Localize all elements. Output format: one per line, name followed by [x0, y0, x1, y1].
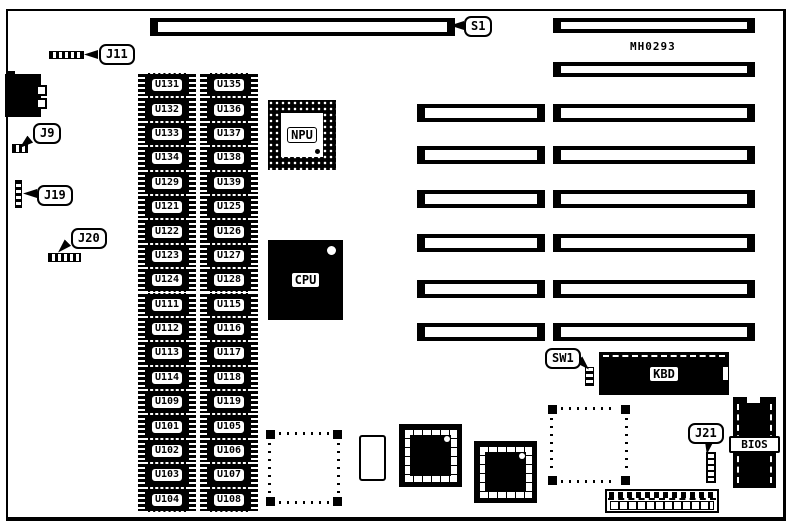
dip-pins — [200, 415, 207, 437]
dip-chip: U116 — [200, 317, 258, 341]
keyboard-port-tab — [36, 85, 47, 96]
dip-pins — [189, 440, 196, 462]
dip-pins — [251, 489, 258, 511]
kbd-dashed-line — [603, 355, 725, 357]
dip-chip: U105 — [200, 414, 258, 438]
dip-pins — [189, 318, 196, 340]
dip-pins — [251, 74, 258, 96]
dip-chip: U118 — [200, 366, 258, 390]
dip-chip: U133 — [138, 122, 196, 146]
dip-pins — [138, 415, 145, 437]
expansion-slot-inner — [425, 108, 537, 118]
dip-pins — [251, 196, 258, 218]
j20-connector — [48, 253, 81, 262]
dip-chip-label: U104 — [151, 493, 183, 507]
dip-body: U129 — [145, 171, 189, 195]
dip-chip-label: U123 — [151, 249, 183, 263]
connector-divider — [608, 498, 716, 500]
dip-pins — [251, 147, 258, 169]
dip-pins — [189, 294, 196, 316]
dip-chip: U127 — [200, 244, 258, 268]
dip-body: U114 — [145, 366, 189, 390]
dip-pins — [189, 196, 196, 218]
expansion-slot — [417, 146, 545, 164]
dip-pins — [251, 318, 258, 340]
dip-pins — [138, 98, 145, 120]
dip-chip: U112 — [138, 317, 196, 341]
callout-s1: S1 — [464, 16, 492, 37]
dip-chip-label: U126 — [213, 225, 245, 239]
expansion-slot — [417, 280, 545, 298]
expansion-slot — [553, 323, 755, 341]
dip-chip-label: U114 — [151, 371, 183, 385]
dip-body: U139 — [207, 171, 251, 195]
dip-chip-label: U129 — [151, 176, 183, 190]
dip-pins — [200, 74, 207, 96]
dip-body: U109 — [145, 390, 189, 414]
dip-pins — [251, 342, 258, 364]
kbd-notch — [723, 367, 728, 380]
expansion-slot-inner — [561, 22, 747, 29]
dip-chip-label: U124 — [151, 273, 183, 287]
plcc-chip — [399, 424, 462, 487]
dip-pins — [251, 172, 258, 194]
dip-body: U122 — [145, 219, 189, 243]
dip-chip-label: U125 — [213, 200, 245, 214]
dip-body: U137 — [207, 122, 251, 146]
dip-pins — [138, 367, 145, 389]
oscillator-outline — [359, 435, 386, 481]
dip-chip: U109 — [138, 390, 196, 414]
dip-chip-label: U102 — [151, 444, 183, 458]
callout-j9: J9 — [33, 123, 61, 144]
dip-body: U106 — [207, 439, 251, 463]
expansion-slot-inner — [425, 284, 537, 294]
dip-pins — [138, 220, 145, 242]
expansion-slot — [417, 190, 545, 208]
dip-chip: U106 — [200, 439, 258, 463]
expansion-slot-inner — [561, 194, 747, 204]
dip-pins — [189, 464, 196, 486]
dip-pins — [189, 123, 196, 145]
plcc-chip — [474, 441, 537, 503]
expansion-slot — [553, 104, 755, 122]
callout-sw1: SW1 — [545, 348, 581, 369]
dip-pins — [138, 123, 145, 145]
dip-pins — [189, 147, 196, 169]
dip-pins — [138, 489, 145, 511]
dip-body: U135 — [207, 73, 251, 97]
dip-chip-label: U122 — [151, 225, 183, 239]
bottom-edge-connector — [605, 489, 719, 513]
j11-connector — [49, 51, 84, 59]
dip-chip-label: U101 — [151, 420, 183, 434]
pin1-dot-icon — [444, 436, 450, 442]
dip-pins — [138, 294, 145, 316]
dip-chip: U137 — [200, 122, 258, 146]
dip-chip: U125 — [200, 195, 258, 219]
dip-body: U105 — [207, 414, 251, 438]
pin1-dot-icon — [315, 149, 320, 154]
dip-chip-label: U115 — [213, 298, 245, 312]
s1-slot-inner — [158, 22, 447, 32]
expansion-slot — [553, 190, 755, 208]
dip-body: U115 — [207, 293, 251, 317]
bios-notch — [747, 397, 760, 403]
dip-chip: U113 — [138, 341, 196, 365]
expansion-slot-inner — [425, 238, 537, 248]
dip-pins — [251, 269, 258, 291]
npu-socket: NPU — [268, 100, 336, 170]
dip-pins — [200, 196, 207, 218]
dip-chip-label: U133 — [151, 127, 183, 141]
callout-j21: J21 — [688, 423, 724, 444]
dip-body: U112 — [145, 317, 189, 341]
expansion-slot — [553, 280, 755, 298]
dip-pins — [200, 220, 207, 242]
expansion-slot-inner — [561, 327, 747, 337]
dip-pins — [200, 464, 207, 486]
dip-pins — [189, 98, 196, 120]
expansion-slot — [417, 104, 545, 122]
dip-pins — [138, 196, 145, 218]
dip-pins — [200, 318, 207, 340]
dip-chip: U102 — [138, 439, 196, 463]
dip-body: U131 — [145, 73, 189, 97]
dip-pins — [200, 245, 207, 267]
cpu-label: CPU — [291, 272, 321, 288]
dip-chip-label: U105 — [213, 420, 245, 434]
dip-pins — [200, 294, 207, 316]
dip-chip-label: U139 — [213, 176, 245, 190]
dip-body: U113 — [145, 341, 189, 365]
dip-pins — [138, 172, 145, 194]
dip-body: U107 — [207, 463, 251, 487]
s1-slot — [150, 18, 455, 36]
qfp-footprint — [548, 405, 630, 485]
dip-pins — [251, 245, 258, 267]
dip-pins — [189, 220, 196, 242]
expansion-slot — [417, 323, 545, 341]
dip-chip: U126 — [200, 219, 258, 243]
dip-body: U124 — [145, 268, 189, 292]
dip-pins — [200, 391, 207, 413]
dip-chip: U104 — [138, 488, 196, 512]
j21-connector — [706, 452, 716, 483]
dip-pins — [200, 172, 207, 194]
dip-chip-label: U103 — [151, 468, 183, 482]
dip-chip: U108 — [200, 488, 258, 512]
dip-chip: U138 — [200, 146, 258, 170]
dip-body: U121 — [145, 195, 189, 219]
dip-chip-label: U135 — [213, 78, 245, 92]
dip-body: U132 — [145, 97, 189, 121]
dip-body: U138 — [207, 146, 251, 170]
sw1-dip-switch — [585, 367, 594, 386]
dip-chip-label: U119 — [213, 395, 245, 409]
pin1-dot-icon — [327, 246, 336, 255]
board-outline — [6, 9, 786, 521]
dip-pins — [189, 391, 196, 413]
dip-chip: U136 — [200, 97, 258, 121]
dip-pins — [251, 440, 258, 462]
dip-chip: U103 — [138, 463, 196, 487]
dip-body: U126 — [207, 219, 251, 243]
dip-pins — [200, 342, 207, 364]
dip-body: U103 — [145, 463, 189, 487]
dip-pins — [138, 245, 145, 267]
expansion-slot-inner — [425, 327, 537, 337]
expansion-slot-inner — [561, 150, 747, 160]
dip-pins — [251, 123, 258, 145]
dip-body: U134 — [145, 146, 189, 170]
dip-chip: U134 — [138, 146, 196, 170]
dip-pins — [251, 415, 258, 437]
dip-pins — [200, 147, 207, 169]
expansion-slot — [553, 146, 755, 164]
dip-body: U127 — [207, 244, 251, 268]
dip-chip-label: U134 — [151, 151, 183, 165]
dip-chip-label: U116 — [213, 322, 245, 336]
dip-chip-label: U112 — [151, 322, 183, 336]
dip-body: U101 — [145, 414, 189, 438]
dip-pins — [200, 440, 207, 462]
dip-pins — [189, 489, 196, 511]
dip-body: U123 — [145, 244, 189, 268]
dip-pins — [200, 269, 207, 291]
expansion-slot — [553, 18, 755, 33]
qfp-footprint — [266, 430, 342, 506]
dip-chip-label: U111 — [151, 298, 183, 312]
dip-body: U133 — [145, 122, 189, 146]
dip-pins — [251, 464, 258, 486]
dip-chip: U122 — [138, 219, 196, 243]
dip-pins — [138, 391, 145, 413]
dip-pins — [189, 245, 196, 267]
dip-pins — [251, 220, 258, 242]
dip-pins — [251, 367, 258, 389]
callout-j11: J11 — [99, 44, 135, 65]
dip-chip-label: U108 — [213, 493, 245, 507]
dip-chip: U139 — [200, 171, 258, 195]
callout-j19: J19 — [37, 185, 73, 206]
dip-chip: U101 — [138, 414, 196, 438]
pin1-dot-icon — [519, 453, 525, 459]
dip-chip: U135 — [200, 73, 258, 97]
bios-chip: BIOS — [733, 397, 776, 488]
dip-pins — [251, 391, 258, 413]
dip-pins — [189, 74, 196, 96]
expansion-slot-inner — [561, 66, 747, 73]
dip-pins — [138, 342, 145, 364]
dip-body: U102 — [145, 439, 189, 463]
dip-chip: U124 — [138, 268, 196, 292]
dip-chip: U119 — [200, 390, 258, 414]
dip-body: U128 — [207, 268, 251, 292]
dip-pins — [189, 269, 196, 291]
dip-chip: U107 — [200, 463, 258, 487]
dip-body: U116 — [207, 317, 251, 341]
dip-chip: U121 — [138, 195, 196, 219]
expansion-slot-inner — [561, 238, 747, 248]
cpu-chip: CPU — [268, 240, 343, 320]
dip-chip: U128 — [200, 268, 258, 292]
dip-chip-label: U137 — [213, 127, 245, 141]
dip-pins — [200, 367, 207, 389]
dip-chip-label: U106 — [213, 444, 245, 458]
dip-pins — [251, 98, 258, 120]
dip-chip-label: U109 — [151, 395, 183, 409]
npu-label: NPU — [287, 127, 317, 143]
dip-body: U108 — [207, 488, 251, 512]
motherboard-diagram: { "board": { "model_text": "MH0293", "ca… — [0, 0, 791, 527]
callout-j20: J20 — [71, 228, 107, 249]
dip-body: U119 — [207, 390, 251, 414]
dip-pins — [138, 147, 145, 169]
dip-pins — [138, 318, 145, 340]
dip-chip: U132 — [138, 97, 196, 121]
dip-body: U104 — [145, 488, 189, 512]
expansion-slot — [417, 234, 545, 252]
connector-pins — [610, 501, 714, 510]
expansion-slot-inner — [425, 194, 537, 204]
dip-pins — [138, 74, 145, 96]
board-model-text: MH0293 — [630, 40, 676, 53]
dip-body: U136 — [207, 97, 251, 121]
dip-chip-label: U136 — [213, 103, 245, 117]
dip-chip: U115 — [200, 293, 258, 317]
dip-chip-label: U107 — [213, 468, 245, 482]
dip-body: U117 — [207, 341, 251, 365]
dip-chip-label: U138 — [213, 151, 245, 165]
dip-pins — [189, 172, 196, 194]
dip-chip-label: U127 — [213, 249, 245, 263]
dip-chip-label: U121 — [151, 200, 183, 214]
expansion-slot — [553, 62, 755, 77]
expansion-slot-inner — [561, 108, 747, 118]
dip-body: U125 — [207, 195, 251, 219]
dip-chip-label: U131 — [151, 78, 183, 92]
dip-pins — [189, 342, 196, 364]
dip-pins — [138, 269, 145, 291]
kbd-controller-chip: KBD — [599, 352, 729, 395]
expansion-slot — [553, 234, 755, 252]
dip-chip-label: U128 — [213, 273, 245, 287]
dip-pins — [200, 123, 207, 145]
kbd-label: KBD — [649, 366, 679, 382]
dip-pins — [138, 440, 145, 462]
dip-body: U111 — [145, 293, 189, 317]
dip-chip: U111 — [138, 293, 196, 317]
dip-body: U118 — [207, 366, 251, 390]
j19-connector — [15, 180, 22, 208]
expansion-slot-inner — [425, 150, 537, 160]
dip-pins — [200, 98, 207, 120]
keyboard-port-tab — [36, 98, 47, 109]
dip-chip-label: U117 — [213, 346, 245, 360]
dip-pins — [138, 464, 145, 486]
expansion-slot-inner — [561, 284, 747, 294]
dip-chip: U129 — [138, 171, 196, 195]
dip-pins — [189, 367, 196, 389]
dip-chip-label: U113 — [151, 346, 183, 360]
dip-chip: U114 — [138, 366, 196, 390]
dip-pins — [200, 489, 207, 511]
dip-chip-label: U118 — [213, 371, 245, 385]
dip-pins — [189, 415, 196, 437]
dip-pins — [251, 294, 258, 316]
dip-chip-label: U132 — [151, 103, 183, 117]
bios-label: BIOS — [729, 436, 780, 453]
dip-chip: U131 — [138, 73, 196, 97]
dip-chip: U117 — [200, 341, 258, 365]
dip-chip: U123 — [138, 244, 196, 268]
